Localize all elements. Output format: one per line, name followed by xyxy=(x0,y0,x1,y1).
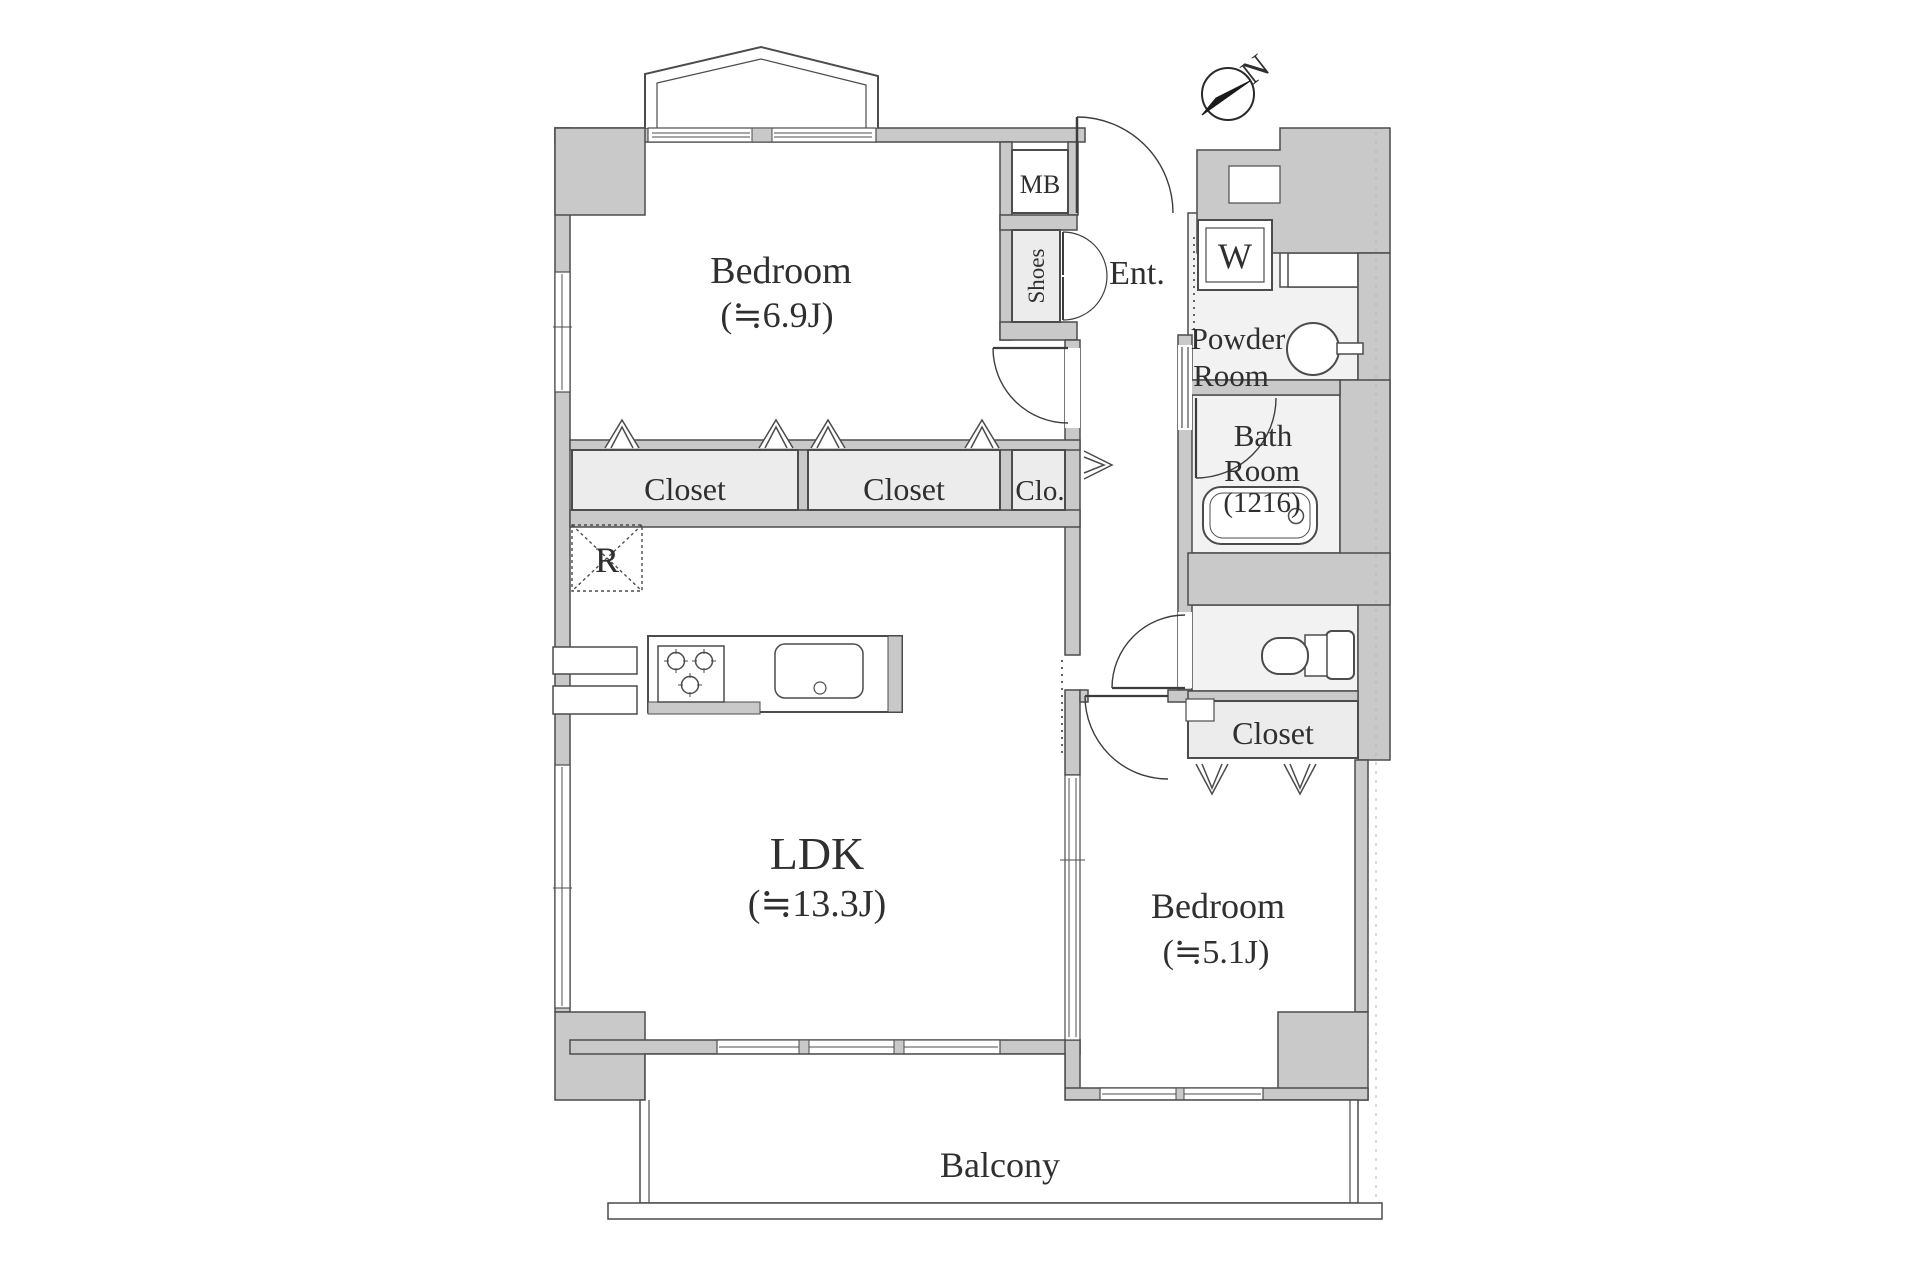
powder-room-label-1: Powder xyxy=(1191,321,1286,356)
closet-a-label: Closet xyxy=(644,471,726,507)
powder-room-sliding-door xyxy=(1178,345,1192,430)
ldk-bedroom2-partition xyxy=(1065,775,1080,1040)
bedroom1-size: (≒6.9J) xyxy=(720,295,833,335)
wall-closet-bottom-band xyxy=(570,510,1080,527)
bath-room-label-1: Bath xyxy=(1234,418,1293,453)
closet-c-notch xyxy=(1186,699,1214,721)
bedroom1-label: Bedroom xyxy=(710,250,851,292)
floor-plan-canvas: N Bedroom (≒6.9J) LDK (≒13.3J) Bedroom (… xyxy=(0,0,1920,1280)
sink-icon xyxy=(775,644,863,698)
pillar-bottom-left xyxy=(555,1012,645,1100)
shoes-cabinet-doors xyxy=(1063,232,1107,320)
clo-label: Clo. xyxy=(1015,475,1064,507)
bath-room-label-3: (1216) xyxy=(1223,487,1300,519)
bedroom2-size: (≒5.1J) xyxy=(1163,934,1270,971)
kitchen-cabinet-lower xyxy=(553,686,637,714)
wall-bath-toilet xyxy=(1188,553,1390,605)
powder-counter xyxy=(1288,253,1358,287)
kitchen-cabinet-upper xyxy=(553,647,637,674)
washer-label: W xyxy=(1218,236,1252,276)
entrance-label: Ent. xyxy=(1109,255,1165,292)
wall-bath-right xyxy=(1340,380,1390,560)
wall-shoes-bottom xyxy=(1000,322,1077,340)
balcony-label: Balcony xyxy=(940,1145,1060,1185)
ldk-size: (≒13.3J) xyxy=(748,883,886,925)
bath-room-label-2: Room xyxy=(1224,453,1300,488)
ldk-label: LDK xyxy=(770,828,865,879)
shoes-label: Shoes xyxy=(1024,248,1049,303)
bedroom1-door xyxy=(993,348,1080,428)
balcony-slab xyxy=(608,1203,1382,1219)
wall-shoes-top xyxy=(1000,215,1077,230)
entrance-door xyxy=(1077,117,1173,213)
bedroom2-door xyxy=(1085,696,1168,779)
bedroom2-label: Bedroom xyxy=(1151,886,1285,926)
kitchen xyxy=(553,636,902,714)
toilet-icon xyxy=(1262,631,1354,679)
closet-c-label: Closet xyxy=(1232,715,1314,751)
toilet-door xyxy=(1112,612,1192,688)
bay-window xyxy=(645,47,878,128)
meter-box-label: MB xyxy=(1020,170,1060,199)
wall-closet-gap2 xyxy=(1000,450,1012,510)
floor-plan-page: N Bedroom (≒6.9J) LDK (≒13.3J) Bedroom (… xyxy=(0,0,1920,1280)
kitchen-counter-edge xyxy=(648,702,760,714)
pillar-top-left xyxy=(555,128,645,215)
pillar-bottom-right xyxy=(1278,1012,1368,1100)
wall-bedroom2-right xyxy=(1355,760,1368,1012)
shaft-notch xyxy=(1229,166,1280,203)
wall-closet-gap1 xyxy=(798,450,808,510)
wall-bedroom1-right xyxy=(1000,142,1012,340)
bay-mullion xyxy=(752,128,772,142)
clo-fold-mark xyxy=(1084,451,1112,479)
compass-icon: N xyxy=(1202,48,1277,120)
closet-b-label: Closet xyxy=(863,471,945,507)
wall-corridor-left-lower xyxy=(1065,690,1080,775)
balcony-structure xyxy=(608,1054,1382,1219)
fridge-label: R xyxy=(595,540,619,580)
powder-room-label-2: Room xyxy=(1193,358,1269,393)
kitchen-counter-cap xyxy=(888,636,902,712)
